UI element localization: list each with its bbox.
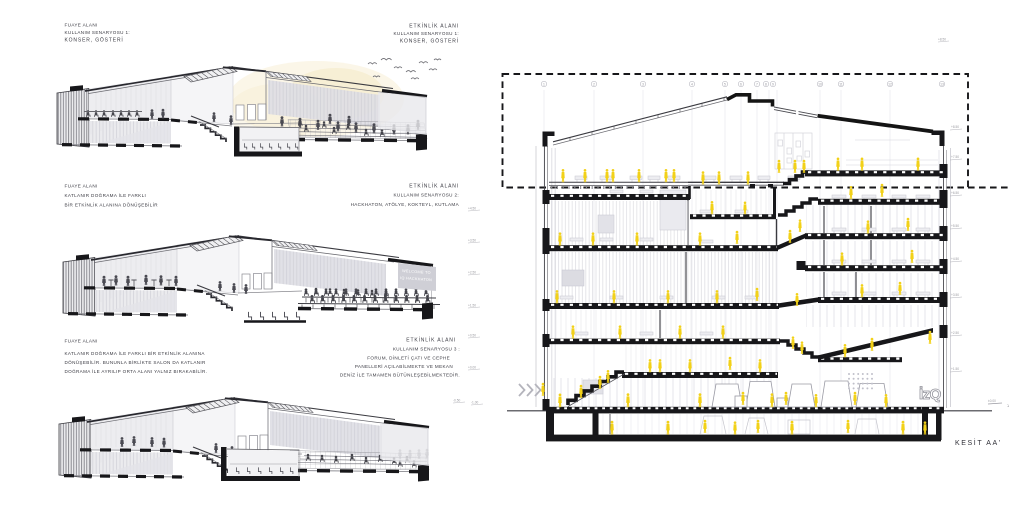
svg-text:±0.00: ±0.00 bbox=[988, 399, 996, 403]
svg-text:DÖNÜŞEBİLİR. BUNUNLA BİRLİKTE: DÖNÜŞEBİLİR. BUNUNLA BİRLİKTE SALON DA K… bbox=[65, 359, 207, 365]
svg-text:7: 7 bbox=[756, 83, 758, 87]
svg-text:KULLANIM SENARYOSU 1:: KULLANIM SENARYOSU 1: bbox=[65, 30, 130, 35]
svg-text:2: 2 bbox=[593, 83, 595, 87]
svg-text:+0.00: +0.00 bbox=[468, 366, 476, 370]
svg-text:+2.50: +2.50 bbox=[468, 271, 476, 275]
svg-text:+8.50: +8.50 bbox=[938, 38, 946, 42]
svg-text:6: 6 bbox=[740, 83, 742, 87]
svg-text:4: 4 bbox=[691, 83, 693, 87]
svg-text:ETKİNLİK ALANI: ETKİNLİK ALANI bbox=[409, 23, 459, 30]
svg-text:+7.50: +7.50 bbox=[951, 155, 959, 159]
svg-text:+4.50: +4.50 bbox=[468, 207, 476, 211]
svg-text:13: 13 bbox=[940, 83, 944, 87]
svg-text:KULLANIM SENARYOSU 3 :: KULLANIM SENARYOSU 3 : bbox=[393, 347, 460, 352]
svg-text:+1.50: +1.50 bbox=[951, 367, 959, 371]
svg-text:FUAYE ALANI: FUAYE ALANI bbox=[65, 339, 98, 344]
svg-text:9: 9 bbox=[772, 83, 774, 87]
svg-text:11: 11 bbox=[839, 83, 843, 87]
svg-text:BİR ETKİNLİK ALANINA DÖNÜŞEBİL: BİR ETKİNLİK ALANINA DÖNÜŞEBİLİR bbox=[65, 202, 159, 208]
svg-text:FUAYE ALANI: FUAYE ALANI bbox=[65, 184, 98, 189]
svg-text:ETKİNLİK ALANI: ETKİNLİK ALANI bbox=[406, 337, 456, 344]
svg-text:+5.50: +5.50 bbox=[951, 224, 959, 228]
svg-text:12: 12 bbox=[888, 83, 892, 87]
svg-text:KONSER, GÖSTERİ: KONSER, GÖSTERİ bbox=[400, 38, 459, 45]
svg-text:8: 8 bbox=[765, 83, 767, 87]
svg-text:PANELLERİ AÇILABİLMEKTE VE MEK: PANELLERİ AÇILABİLMEKTE VE MEKAN bbox=[355, 363, 453, 369]
svg-text:DENİZ İLE TAMAMEN BÜTÜNLEŞEBİL: DENİZ İLE TAMAMEN BÜTÜNLEŞEBİLMEKTEDİR. bbox=[340, 372, 460, 378]
svg-text:HACKHATON, ATÖLYE, KOKTEYL, K: HACKHATON, ATÖLYE, KOKTEYL, KUTLAMA bbox=[351, 201, 460, 207]
svg-text:1: 1 bbox=[543, 83, 545, 87]
svg-text:ETKİNLİK ALANI: ETKİNLİK ALANI bbox=[409, 183, 459, 190]
svg-text:KULLANIM SENARYOSU 2:: KULLANIM SENARYOSU 2: bbox=[394, 193, 459, 198]
svg-text:KESİT AA': KESİT AA' bbox=[955, 438, 1002, 447]
svg-text:-1.00: -1.00 bbox=[471, 401, 478, 405]
svg-text:+3.50: +3.50 bbox=[468, 239, 476, 243]
svg-text:+6.50: +6.50 bbox=[951, 191, 959, 195]
svg-text:3: 3 bbox=[642, 83, 644, 87]
svg-text:+0.50: +0.50 bbox=[468, 334, 476, 338]
svg-text:-0.50: -0.50 bbox=[453, 399, 460, 403]
svg-text:DOĞRAMA İLE AYRILIP ORTA ALANI: DOĞRAMA İLE AYRILIP ORTA ALANI YALNIZ BI… bbox=[65, 368, 208, 374]
svg-text:+2.50: +2.50 bbox=[951, 331, 959, 335]
svg-text:KATLANIR DOĞRAMA İLE FARKLI: KATLANIR DOĞRAMA İLE FARKLI bbox=[65, 192, 147, 198]
svg-text:5: 5 bbox=[724, 83, 726, 87]
svg-text:FUAYE ALANI: FUAYE ALANI bbox=[65, 23, 98, 28]
svg-text:+8.50: +8.50 bbox=[951, 125, 959, 129]
svg-text:KATLANIR DOĞRAMA İLE FARKLI Bİ: KATLANIR DOĞRAMA İLE FARKLI BİR ETKİNLİK… bbox=[65, 350, 206, 356]
svg-text:10: 10 bbox=[818, 83, 822, 87]
svg-text:+3.50: +3.50 bbox=[951, 293, 959, 297]
svg-text:KONSER, GÖSTERİ: KONSER, GÖSTERİ bbox=[65, 37, 124, 44]
svg-text:+1.50: +1.50 bbox=[468, 304, 476, 308]
svg-text:FORUM, DİNLETİ ÇATI VE CEPHE: FORUM, DİNLETİ ÇATI VE CEPHE bbox=[367, 355, 450, 361]
svg-text:+4.50: +4.50 bbox=[951, 257, 959, 261]
svg-text:KULLANIM SENARYOSU 1:: KULLANIM SENARYOSU 1: bbox=[394, 31, 459, 36]
